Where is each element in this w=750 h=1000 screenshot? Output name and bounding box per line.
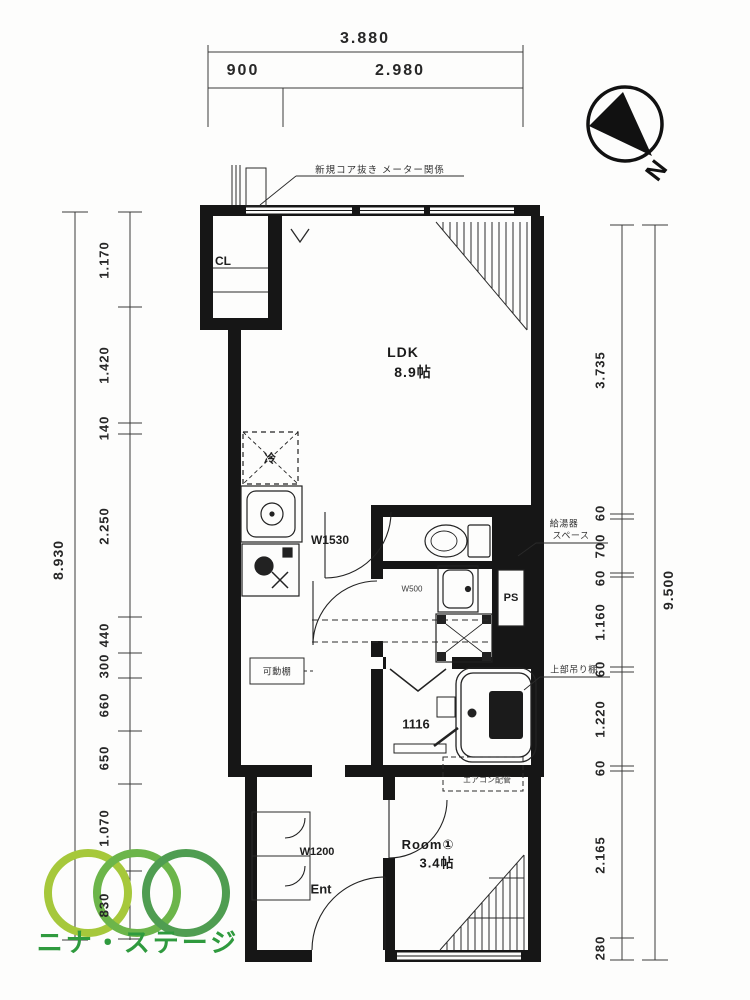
left-chain-dim (118, 212, 142, 940)
basin-width-label: W500 (402, 585, 423, 594)
dim-left-seg-9: 830 (97, 893, 112, 918)
dim-right-seg-8: 2.165 (593, 836, 608, 874)
room-label-entrance: Ent (311, 882, 332, 897)
kitchen-width-label: W1530 (311, 533, 349, 547)
room-size-room1: 3.4帖 (419, 853, 454, 872)
bath-door-frame (437, 697, 455, 717)
dim-left-seg-8: 1.070 (97, 809, 112, 847)
floor-plan-page: 3.880 900 2.980 8.930 1.170 1.420 140 2.… (0, 0, 750, 1000)
room-size-ldk: 8.9帖 (394, 362, 431, 382)
bath-step (394, 744, 446, 753)
dim-left-seg-7: 650 (97, 746, 112, 771)
windows (246, 205, 521, 960)
dim-right-seg-3: 60 (593, 570, 608, 586)
unit-bath-size-label: 1116 (402, 717, 430, 732)
compass (588, 87, 662, 161)
dim-right-seg-4: 1.160 (593, 603, 608, 641)
dim-left-seg-2: 140 (97, 416, 112, 441)
dim-left-seg-6: 660 (97, 693, 112, 718)
floor-plan-drawing (0, 0, 750, 1000)
toilet-tank (468, 525, 490, 557)
movable-shelf-note: 可動棚 (263, 665, 292, 678)
top-note-leader (260, 176, 464, 205)
dim-right-seg-7: 60 (593, 760, 608, 776)
dim-right-seg-9: 280 (593, 936, 608, 961)
toilet-bowl-inner (431, 531, 457, 551)
ldk-window-hatch (436, 222, 527, 330)
washroom-door (313, 581, 377, 645)
right-chain-dim (610, 225, 634, 960)
dim-top-seg-900: 900 (227, 62, 260, 80)
stove-cross-icon (272, 572, 288, 588)
room-label-closet: CL (215, 254, 231, 268)
bath-door-leaf (434, 728, 458, 746)
logo-ring-1 (48, 853, 128, 933)
vent-mark (291, 229, 309, 242)
dim-right-total: 9.500 (660, 570, 676, 610)
top-note: 新規コア抜き メーター関係 (315, 162, 445, 176)
water-heater-note-2: スペース (553, 529, 590, 542)
room-label-ldk: LDK (387, 344, 419, 360)
compass-needle-icon (589, 92, 652, 156)
stove-knob (283, 548, 292, 557)
dim-right-seg-0: 3.735 (593, 351, 608, 389)
entrance-width-label: W1200 (300, 846, 335, 858)
dim-top-total: 3.880 (340, 30, 390, 48)
dimension-lines (62, 45, 668, 960)
dim-right-seg-6: 1.220 (593, 700, 608, 738)
room-label-pipe-shaft: PS (504, 592, 519, 604)
dim-left-seg-1: 1.420 (97, 346, 112, 384)
aircon-note: エアコン配管 (463, 775, 511, 786)
closet-shelves (213, 268, 268, 292)
washbasin-faucet-dot (466, 587, 471, 592)
top-dim-lines (208, 45, 523, 127)
washer-cross (446, 624, 482, 652)
dim-left-seg-0: 1.170 (97, 241, 112, 279)
logo-company-name: ニナ・ステージ (37, 923, 239, 960)
fridge-label: 冷 (264, 450, 276, 467)
dim-left-seg-4: 440 (97, 623, 112, 648)
dim-left-seg-5: 300 (97, 654, 112, 679)
meter-pipes (232, 165, 240, 205)
bathroom (390, 668, 536, 762)
logo-ring-3 (146, 853, 226, 933)
bathtub-pad (489, 691, 523, 739)
upper-shelf-note: 上部吊り棚 (550, 663, 598, 676)
meter-box (246, 168, 266, 206)
faucet-dot (270, 512, 274, 516)
dim-top-seg-2980: 2.980 (375, 62, 425, 80)
dim-right-seg-1: 60 (593, 505, 608, 521)
bathtub-drain (468, 709, 477, 718)
burner-icon (255, 557, 273, 575)
room-label-room1: Room① (402, 837, 455, 853)
dim-right-seg-2: 700 (593, 534, 608, 559)
dim-left-total: 8.930 (50, 540, 66, 580)
dim-left-seg-3: 2.250 (97, 507, 112, 545)
bath-folding-door (390, 669, 446, 691)
